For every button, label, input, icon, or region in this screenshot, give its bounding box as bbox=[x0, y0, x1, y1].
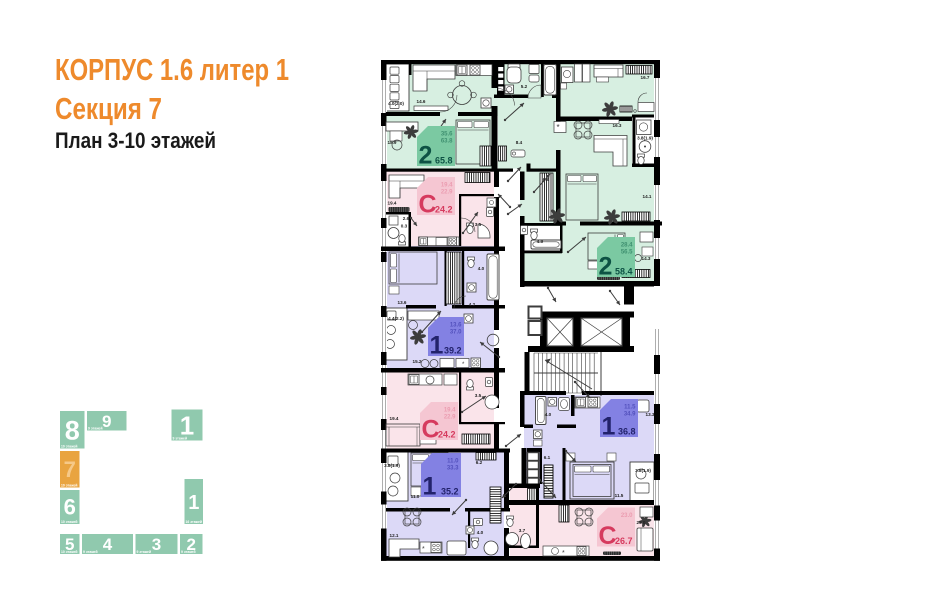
svg-text:11.0: 11.0 bbox=[411, 494, 420, 499]
svg-text:3: 3 bbox=[152, 535, 161, 554]
svg-text:14.6: 14.6 bbox=[417, 99, 426, 104]
svg-text:11.5: 11.5 bbox=[624, 405, 636, 411]
svg-text:*: * bbox=[557, 123, 560, 132]
svg-text:10 этажей: 10 этажей bbox=[61, 484, 77, 488]
svg-text:19.4: 19.4 bbox=[444, 408, 456, 414]
svg-text:23.0: 23.0 bbox=[637, 520, 646, 525]
svg-text:8.4: 8.4 bbox=[516, 140, 523, 145]
svg-text:4.9: 4.9 bbox=[537, 239, 544, 244]
svg-text:13.3: 13.3 bbox=[646, 412, 655, 417]
svg-text:4.0: 4.0 bbox=[477, 530, 484, 535]
svg-text:16 этажей: 16 этажей bbox=[186, 520, 202, 524]
svg-text:4.4(2.2): 4.4(2.2) bbox=[388, 316, 404, 321]
svg-text:18.9: 18.9 bbox=[388, 140, 397, 145]
svg-text:14.3: 14.3 bbox=[642, 256, 651, 261]
svg-text:37.0: 37.0 bbox=[450, 330, 462, 336]
svg-text:10 этажей: 10 этажей bbox=[61, 445, 77, 449]
svg-text:7: 7 bbox=[64, 457, 76, 482]
svg-text:26.7: 26.7 bbox=[615, 536, 633, 546]
svg-text:9 этажей: 9 этажей bbox=[173, 437, 188, 441]
svg-text:План 3-10 этажей: План 3-10 этажей bbox=[55, 128, 216, 153]
svg-text:5.2: 5.2 bbox=[521, 84, 528, 89]
svg-text:1: 1 bbox=[602, 413, 616, 441]
svg-text:65.8: 65.8 bbox=[435, 156, 453, 166]
svg-text:4.2: 4.2 bbox=[469, 302, 476, 307]
svg-text:11.0: 11.0 bbox=[447, 459, 459, 465]
svg-text:14.1: 14.1 bbox=[643, 194, 652, 199]
svg-text:35.6: 35.6 bbox=[441, 132, 453, 138]
svg-text:2: 2 bbox=[599, 253, 613, 281]
svg-text:63.8: 63.8 bbox=[441, 139, 453, 145]
svg-text:*: * bbox=[562, 550, 565, 557]
svg-text:3.8(1.9): 3.8(1.9) bbox=[635, 468, 651, 473]
svg-text:0.3: 0.3 bbox=[401, 224, 408, 229]
svg-text:С: С bbox=[419, 191, 437, 219]
svg-text:2.6: 2.6 bbox=[403, 216, 410, 221]
svg-text:16.3: 16.3 bbox=[613, 123, 622, 128]
svg-text:6.1: 6.1 bbox=[544, 455, 551, 460]
svg-text:33.3: 33.3 bbox=[447, 466, 459, 472]
svg-text:6.9: 6.9 bbox=[543, 177, 550, 182]
svg-text:С: С bbox=[422, 416, 440, 444]
svg-text:9 этажей: 9 этажей bbox=[88, 427, 103, 431]
svg-text:10 этажей: 10 этажей bbox=[61, 520, 77, 524]
svg-text:19.4: 19.4 bbox=[441, 183, 453, 189]
svg-text:9 этажей: 9 этажей bbox=[83, 550, 98, 554]
svg-text:24.2: 24.2 bbox=[438, 430, 456, 440]
svg-text:1: 1 bbox=[188, 492, 199, 514]
svg-text:*: * bbox=[422, 546, 425, 553]
svg-text:19.4: 19.4 bbox=[390, 416, 399, 421]
svg-text:3.5: 3.5 bbox=[475, 222, 482, 227]
svg-text:16.7: 16.7 bbox=[641, 75, 650, 80]
svg-text:4.0(2.0): 4.0(2.0) bbox=[388, 101, 404, 106]
svg-text:35.2: 35.2 bbox=[441, 487, 459, 497]
svg-text:28.4: 28.4 bbox=[621, 243, 633, 249]
svg-text:9 этажей: 9 этажей bbox=[137, 550, 152, 554]
svg-text:3.7: 3.7 bbox=[519, 528, 526, 533]
svg-text:8: 8 bbox=[65, 415, 80, 445]
svg-text:13.6: 13.6 bbox=[450, 323, 462, 329]
svg-text:23.0: 23.0 bbox=[621, 513, 633, 519]
svg-text:1: 1 bbox=[430, 332, 444, 360]
svg-text:56.5: 56.5 bbox=[621, 250, 633, 256]
svg-text:15.2: 15.2 bbox=[413, 359, 422, 364]
svg-text:Секция 7: Секция 7 bbox=[55, 91, 162, 126]
svg-text:22.9: 22.9 bbox=[444, 415, 456, 421]
svg-text:9 этажей: 9 этажей bbox=[181, 550, 196, 554]
svg-text:3.8(1.9): 3.8(1.9) bbox=[637, 136, 653, 141]
svg-text:КОРПУС 1.6 литер 1: КОРПУС 1.6 литер 1 bbox=[55, 52, 289, 87]
svg-text:6: 6 bbox=[64, 495, 76, 520]
svg-text:13.6: 13.6 bbox=[398, 300, 407, 305]
svg-text:6.2: 6.2 bbox=[476, 460, 483, 465]
svg-text:С: С bbox=[599, 522, 617, 550]
svg-text:58.4: 58.4 bbox=[615, 267, 633, 277]
svg-text:10 этажей: 10 этажей bbox=[61, 550, 77, 554]
svg-text:36.8: 36.8 bbox=[618, 427, 636, 437]
svg-text:9: 9 bbox=[102, 412, 111, 431]
svg-text:4: 4 bbox=[103, 535, 113, 554]
svg-text:4.0: 4.0 bbox=[478, 266, 485, 271]
svg-text:34.9: 34.9 bbox=[624, 412, 636, 418]
svg-text:3.8(1.9): 3.8(1.9) bbox=[384, 463, 400, 468]
svg-text:1: 1 bbox=[423, 473, 437, 501]
svg-text:22.9: 22.9 bbox=[441, 190, 453, 196]
svg-text:12.1: 12.1 bbox=[390, 533, 399, 538]
svg-text:24.2: 24.2 bbox=[435, 205, 453, 215]
svg-text:2: 2 bbox=[419, 142, 433, 170]
svg-text:11.5: 11.5 bbox=[615, 493, 624, 498]
svg-text:19.4: 19.4 bbox=[388, 201, 397, 206]
svg-text:3.5: 3.5 bbox=[475, 393, 482, 398]
svg-text:39.2: 39.2 bbox=[444, 346, 462, 356]
svg-text:4.0: 4.0 bbox=[545, 412, 552, 417]
